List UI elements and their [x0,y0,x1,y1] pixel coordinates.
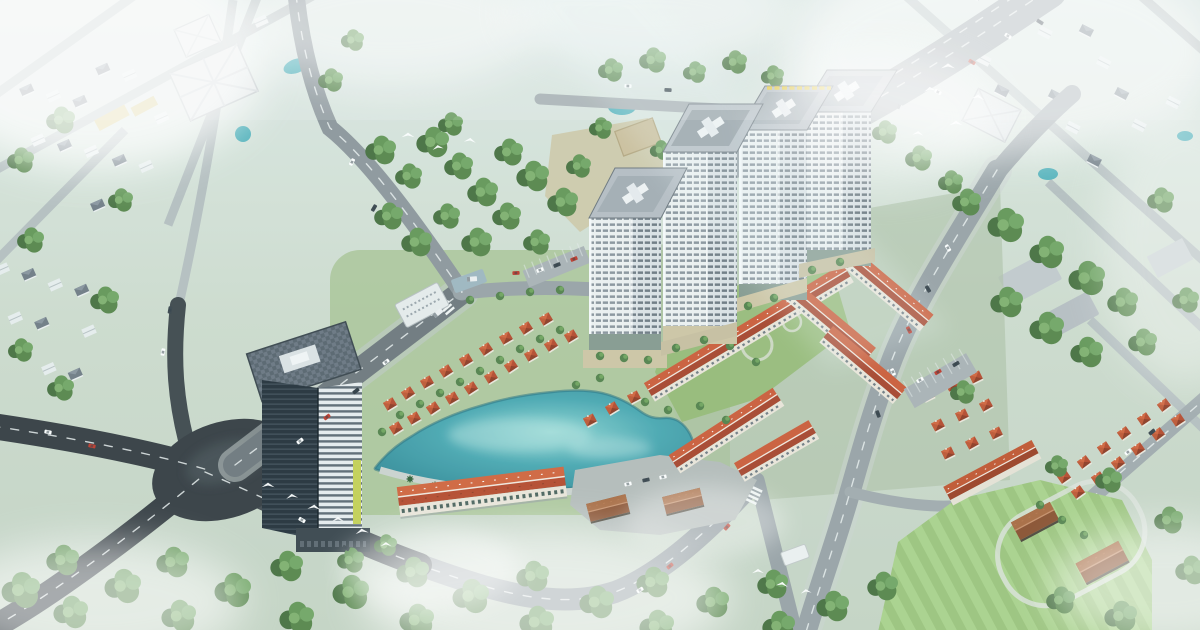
aerial-render: Aerial 3D architectural rendering of a r… [0,0,1200,630]
aerial-render-stage: Aerial 3D architectural rendering of a r… [0,0,1200,630]
atmosphere-haze [0,0,1200,630]
